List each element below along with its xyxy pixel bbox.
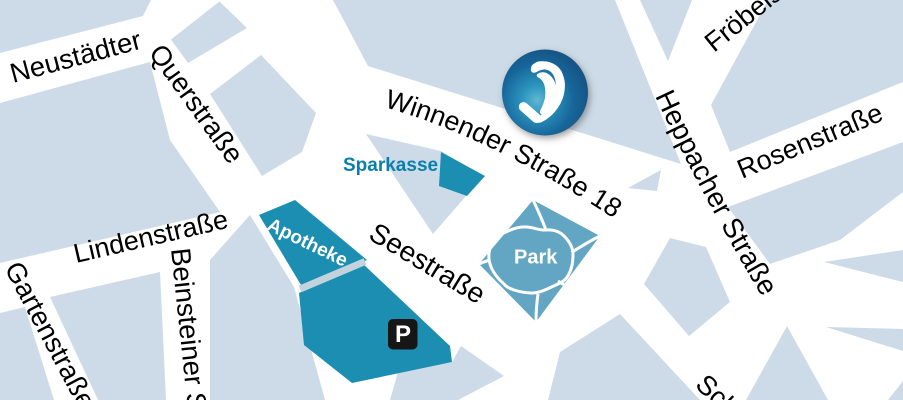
svg-text:Park: Park [514,247,558,269]
svg-text:Sparkasse: Sparkasse [343,155,438,176]
svg-text:P: P [395,321,411,348]
